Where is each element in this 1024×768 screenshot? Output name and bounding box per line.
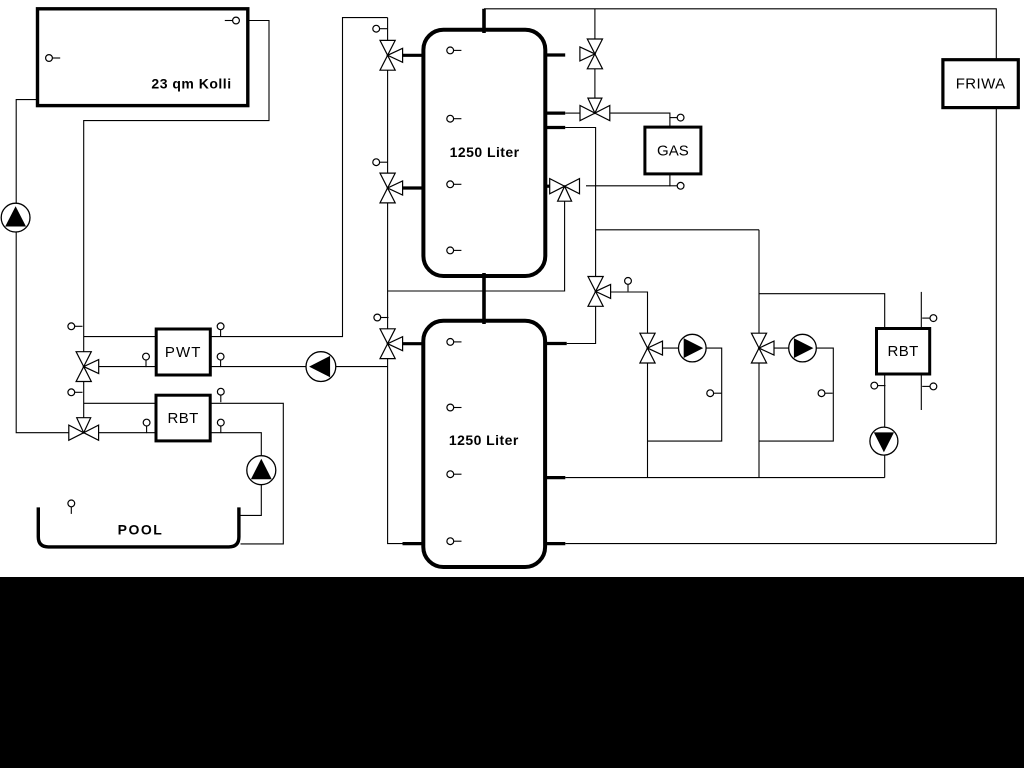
svg-text:1250 Liter: 1250 Liter: [449, 432, 519, 448]
svg-text:23 qm Kolli: 23 qm Kolli: [151, 76, 231, 92]
svg-text:GAS: GAS: [657, 143, 689, 160]
svg-text:RBT: RBT: [887, 343, 918, 360]
svg-text:RBT: RBT: [167, 410, 198, 427]
svg-text:POOL: POOL: [118, 522, 164, 538]
svg-text:PWT: PWT: [165, 344, 202, 361]
svg-text:FRIWA: FRIWA: [956, 76, 1006, 93]
svg-text:1250 Liter: 1250 Liter: [450, 144, 520, 160]
